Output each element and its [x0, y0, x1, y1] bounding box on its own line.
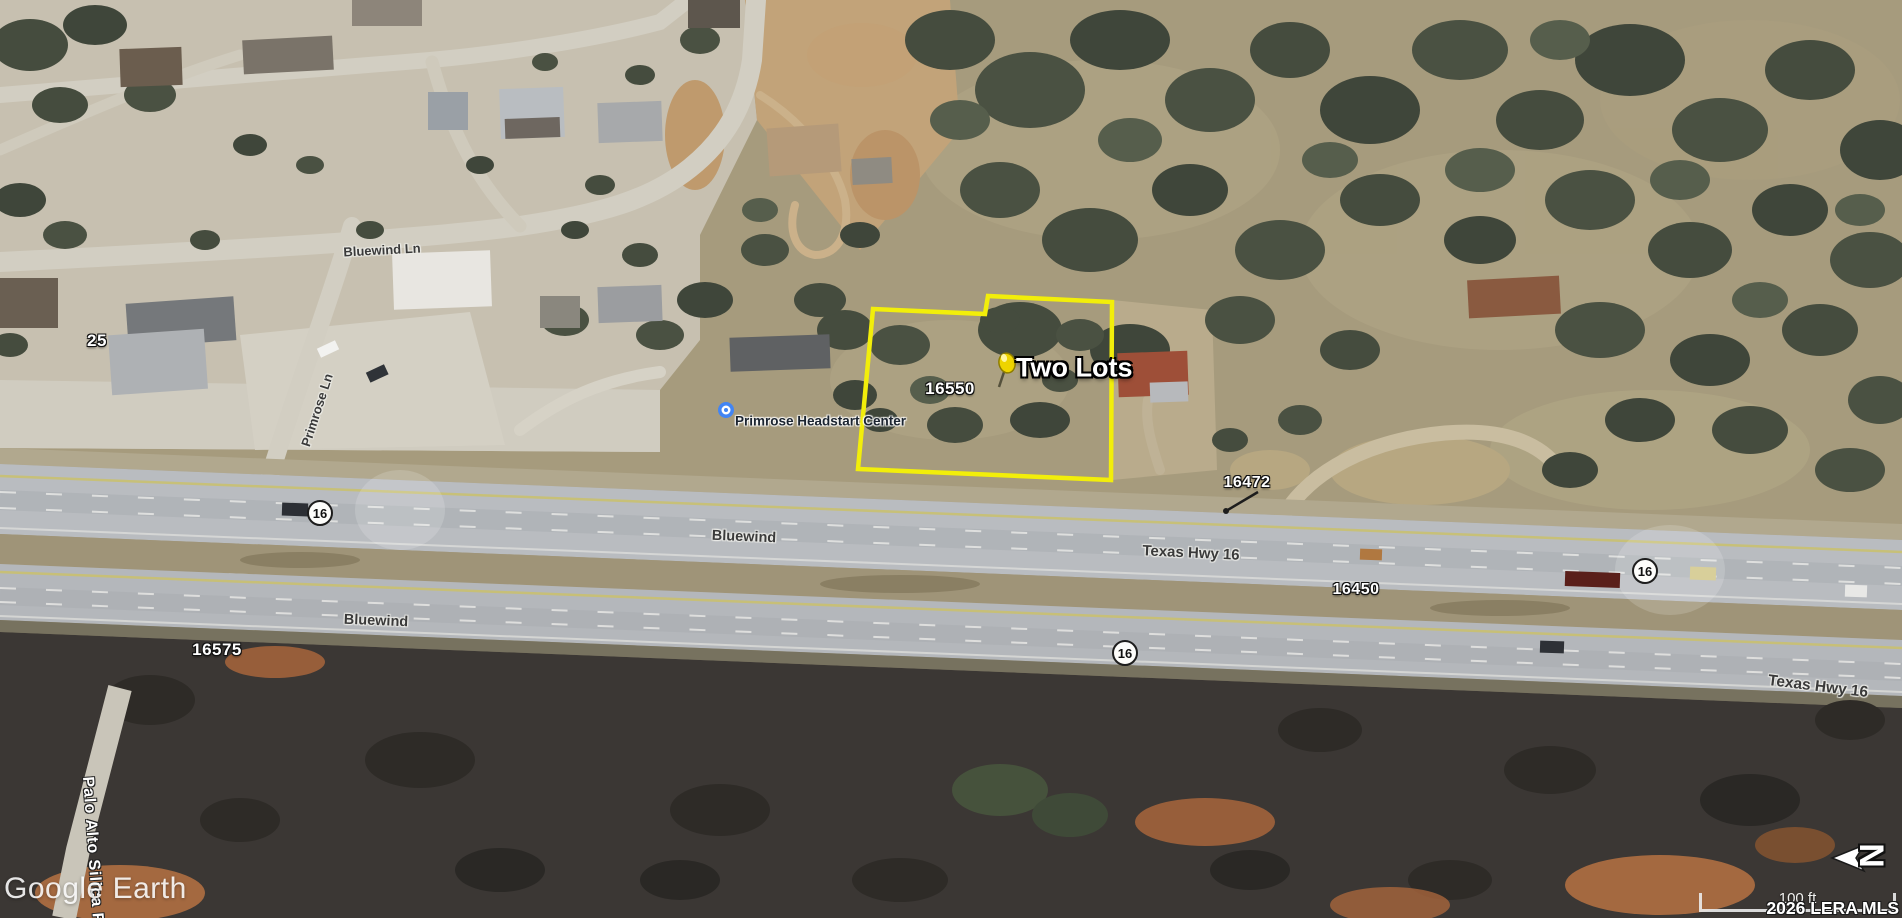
google-earth-watermark: Google Earth [4, 872, 187, 906]
google-earth-aerial-view: Two Lots 16550 25 16575 16472 16450 Prim… [0, 0, 1902, 918]
address-label-16472: 16472 [1224, 474, 1271, 492]
address-label-16575: 16575 [192, 640, 242, 660]
highway-shield-2: 16 [1632, 558, 1658, 584]
north-label: N [1851, 843, 1890, 868]
parcel-number-label: 16550 [925, 379, 975, 399]
road-label-bluewind-upper: Bluewind [711, 528, 776, 547]
mls-attribution: 2026 LERA MLS [1766, 898, 1899, 918]
address-label-16450: 16450 [1333, 581, 1380, 599]
poi-label: Primrose Headstart Center [735, 414, 906, 429]
aerial-terrain [0, 0, 1902, 918]
highway-shield-1: 16 [307, 500, 333, 526]
address-label-25: 25 [87, 331, 107, 351]
pin-label: Two Lots [1016, 353, 1132, 384]
highway-shield-3: 16 [1112, 640, 1138, 666]
road-label-bluewind-lower: Bluewind [343, 612, 408, 631]
poi-marker-icon[interactable] [718, 402, 734, 418]
